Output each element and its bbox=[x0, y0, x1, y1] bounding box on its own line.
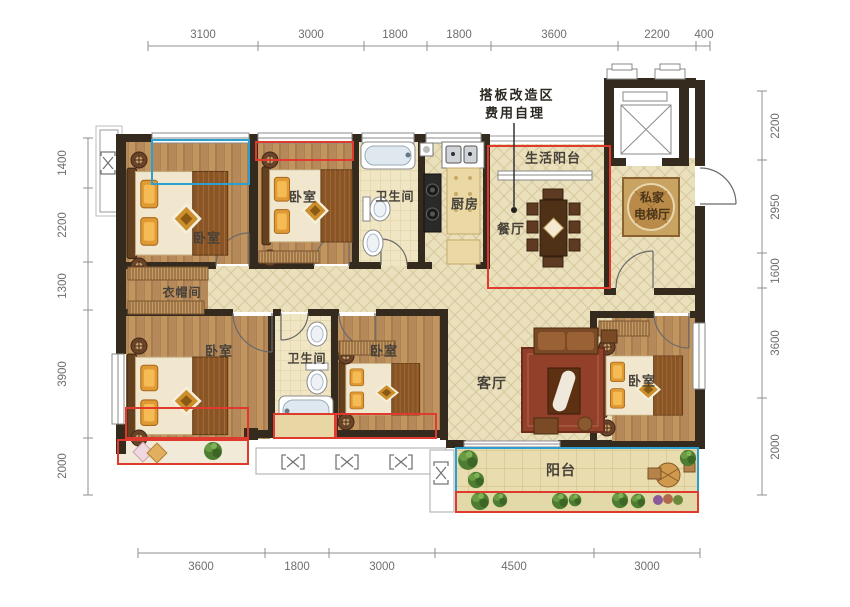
floorplan-graphic bbox=[0, 0, 850, 607]
dim-right-2: 1600 bbox=[770, 258, 782, 284]
kitchen-counter bbox=[447, 168, 480, 264]
dim-right-4: 2000 bbox=[770, 434, 782, 460]
label-bath-top: 卫生间 bbox=[375, 188, 414, 205]
dim-top-1: 3000 bbox=[298, 29, 324, 41]
stove-icon bbox=[424, 174, 441, 232]
label-living: 客厅 bbox=[477, 373, 507, 393]
red-renovation-outline bbox=[274, 414, 335, 438]
label-elevator-hall-2: 电梯厅 bbox=[634, 206, 670, 223]
label-cloakroom: 衣帽间 bbox=[162, 284, 201, 301]
label-bath-bottom: 卫生间 bbox=[287, 350, 326, 367]
dim-top-2: 1800 bbox=[382, 29, 408, 41]
dim-bottom-1: 1800 bbox=[284, 561, 310, 573]
label-bedroom-tl: 卧室 bbox=[193, 228, 221, 247]
label-bedroom-br: 卧室 bbox=[628, 371, 656, 390]
dim-bottom-4: 3000 bbox=[634, 561, 660, 573]
dim-left-0: 1400 bbox=[57, 150, 69, 176]
dim-left-2: 1300 bbox=[57, 273, 69, 299]
dim-top-3: 1800 bbox=[446, 29, 472, 41]
dim-bottom-0: 3600 bbox=[188, 561, 214, 573]
label-dining: 餐厅 bbox=[497, 219, 525, 238]
annotation-line1: 搭板改造区 bbox=[479, 85, 554, 104]
dim-top-0: 3100 bbox=[190, 29, 216, 41]
bathtub-icon bbox=[361, 142, 415, 169]
floor-corridor bbox=[208, 266, 448, 312]
label-life-balcony: 生活阳台 bbox=[525, 148, 581, 167]
dim-left-4: 2000 bbox=[57, 453, 69, 479]
label-bedroom-bm: 卧室 bbox=[370, 341, 398, 360]
dim-left-1: 2200 bbox=[57, 212, 69, 238]
dim-top-6: 400 bbox=[694, 29, 713, 41]
dim-right-1: 2950 bbox=[770, 194, 782, 220]
label-balcony: 阳台 bbox=[546, 460, 576, 480]
toilet-icon bbox=[306, 363, 328, 394]
dim-bottom-3: 4500 bbox=[501, 561, 527, 573]
dim-top-5: 2200 bbox=[644, 29, 670, 41]
dim-right-3: 3600 bbox=[770, 330, 782, 356]
sink-icon bbox=[363, 230, 383, 256]
dim-bottom-2: 3000 bbox=[369, 561, 395, 573]
annotation-line2: 费用自理 bbox=[485, 103, 545, 122]
label-elevator-hall-1: 私家 bbox=[640, 189, 664, 206]
dim-right-0: 2200 bbox=[770, 113, 782, 139]
sink-icon bbox=[307, 322, 327, 346]
label-bedroom-tm: 卧室 bbox=[289, 187, 317, 206]
dim-left-3: 3900 bbox=[57, 361, 69, 387]
kitchen-sink-icon bbox=[442, 142, 484, 168]
dim-top-4: 3600 bbox=[541, 29, 567, 41]
label-bedroom-bl: 卧室 bbox=[205, 341, 233, 360]
entry-door-arc bbox=[700, 168, 736, 204]
floorplan-canvas: 卧室 卧室 卫生间 厨房 生活阳台 餐厅 私家 电梯厅 衣帽间 卧室 卫生间 卧… bbox=[0, 0, 850, 607]
label-kitchen: 厨房 bbox=[451, 194, 479, 213]
